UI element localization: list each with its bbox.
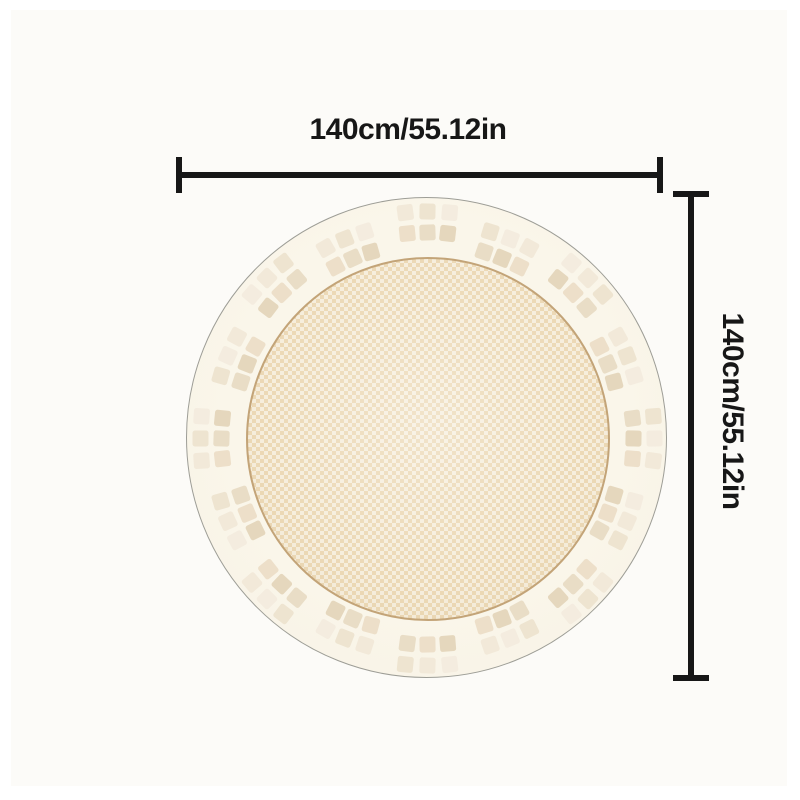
pattern-square: [500, 229, 521, 250]
pattern-square: [286, 268, 309, 291]
pattern-square: [325, 256, 347, 278]
pattern-square: [241, 571, 264, 594]
pattern-square: [272, 603, 294, 625]
pattern-square: [334, 229, 355, 250]
pattern-square: [399, 225, 416, 242]
pattern-square: [342, 608, 363, 629]
pattern-square: [419, 224, 436, 241]
pattern-square: [597, 353, 618, 374]
pattern-square: [398, 635, 416, 653]
pattern-square: [474, 242, 494, 262]
pattern-square: [226, 326, 248, 348]
pattern-square: [193, 452, 210, 469]
pattern-square: [361, 242, 381, 262]
pattern-square: [342, 248, 363, 269]
pattern-square: [560, 252, 583, 275]
pattern-square: [245, 336, 267, 358]
rug-image: [186, 197, 667, 678]
pattern-square: [213, 430, 230, 447]
pattern-square: [256, 267, 279, 290]
pattern-square: [315, 618, 337, 640]
pattern-square: [625, 430, 641, 446]
pattern-square: [624, 409, 642, 427]
pattern-square: [577, 588, 600, 611]
pattern-square: [607, 326, 629, 348]
pattern-square: [256, 588, 279, 611]
pattern-square: [592, 571, 615, 594]
pattern-square: [474, 615, 494, 635]
pattern-square: [624, 366, 644, 386]
pattern-square: [562, 573, 585, 596]
pattern-square: [646, 430, 662, 446]
pattern-square: [270, 281, 293, 304]
pattern-square: [492, 608, 513, 629]
pattern-square: [286, 586, 309, 609]
pattern-square: [241, 283, 264, 306]
pattern-square: [624, 450, 641, 467]
pattern-square: [547, 586, 570, 609]
pattern-square: [439, 635, 456, 652]
pattern-square: [217, 345, 238, 366]
product-image-canvas: 140cm/55.12in 140cm/55.12in: [0, 0, 800, 800]
height-dimension-label: 140cm/55.12in: [715, 261, 749, 561]
pattern-square: [214, 450, 232, 468]
pattern-square: [396, 204, 414, 222]
pattern-square: [441, 656, 459, 674]
pattern-square: [419, 636, 435, 652]
pattern-square: [577, 267, 600, 290]
width-dimension-line: [176, 172, 663, 178]
pattern-square: [589, 520, 611, 542]
pattern-square: [214, 410, 231, 427]
pattern-square: [441, 204, 458, 221]
pattern-square: [315, 237, 337, 259]
height-dimension-cap-bottom: [673, 675, 709, 681]
pattern-square: [419, 657, 436, 674]
pattern-square: [355, 635, 375, 655]
pattern-square: [519, 618, 540, 639]
width-dimension-label: 140cm/55.12in: [258, 113, 558, 147]
pattern-square: [597, 503, 618, 524]
pattern-square: [604, 485, 624, 505]
pattern-square: [575, 558, 598, 581]
pattern-square: [419, 203, 435, 219]
pattern-square: [617, 511, 638, 532]
pattern-square: [509, 600, 531, 622]
pattern-square: [644, 452, 662, 470]
pattern-square: [237, 503, 258, 524]
pattern-square: [193, 431, 209, 447]
height-dimension-line: [688, 191, 694, 681]
pattern-square: [237, 354, 258, 375]
pattern-square: [607, 530, 629, 552]
pattern-square: [645, 408, 662, 425]
pattern-square: [231, 485, 251, 505]
pattern-square: [560, 603, 582, 625]
pattern-square: [193, 408, 210, 425]
pattern-square: [480, 222, 500, 242]
pattern-square: [604, 372, 624, 392]
pattern-square: [272, 252, 294, 274]
pattern-square: [518, 237, 540, 259]
pattern-square: [231, 372, 251, 392]
pattern-square: [500, 628, 521, 649]
pattern-square: [480, 635, 500, 655]
pattern-square: [211, 491, 231, 511]
pattern-square: [624, 491, 644, 511]
pattern-square: [592, 283, 615, 306]
pattern-square: [492, 248, 513, 269]
pattern-square: [361, 615, 381, 635]
pattern-square: [355, 222, 375, 242]
pattern-square: [245, 520, 266, 541]
pattern-square: [617, 346, 638, 367]
pattern-square: [334, 628, 355, 649]
rug-center-weave: [246, 257, 610, 621]
pattern-square: [257, 297, 279, 319]
width-dimension-cap-right: [657, 157, 663, 193]
pattern-square: [226, 529, 248, 551]
pattern-square: [509, 256, 530, 277]
pattern-square: [439, 225, 457, 243]
pattern-square: [211, 366, 231, 386]
pattern-square: [575, 297, 598, 320]
pattern-square: [217, 511, 238, 532]
pattern-square: [397, 656, 414, 673]
